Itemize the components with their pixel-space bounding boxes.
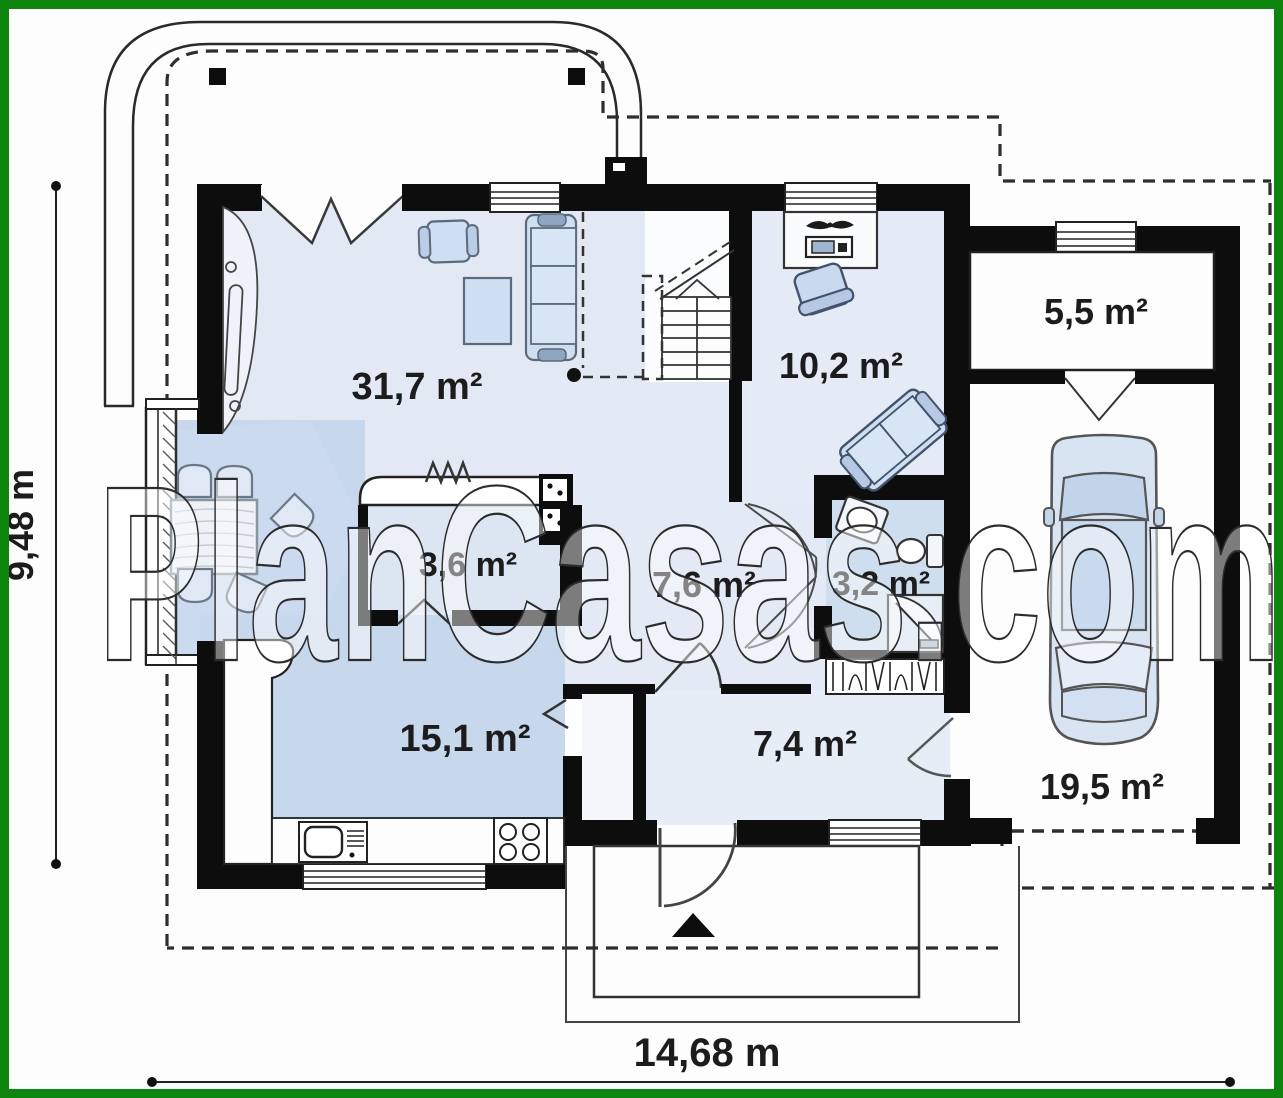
svg-text:15,1 m²: 15,1 m² xyxy=(400,718,531,760)
svg-text:5,5 m²: 5,5 m² xyxy=(1044,291,1148,332)
svg-text:10,2 m²: 10,2 m² xyxy=(779,345,903,386)
svg-text:14,68 m: 14,68 m xyxy=(634,1031,781,1075)
svg-text:19,5 m²: 19,5 m² xyxy=(1040,766,1164,807)
svg-text:31,7 m²: 31,7 m² xyxy=(352,366,483,408)
svg-text:7,4 m²: 7,4 m² xyxy=(753,723,857,764)
svg-text:PlanCasas.com: PlanCasas.com xyxy=(97,434,1282,713)
